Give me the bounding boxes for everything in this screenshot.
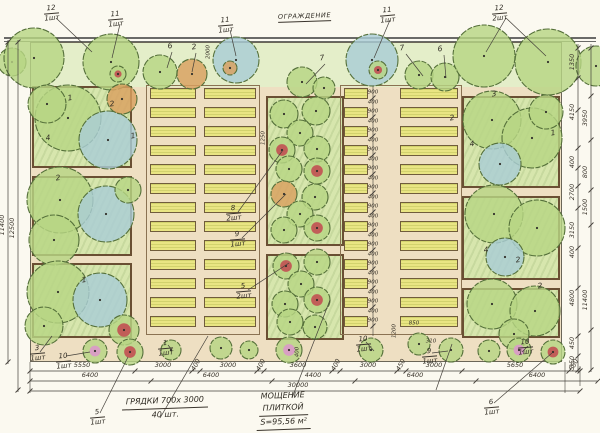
plant-center-dot bbox=[105, 213, 107, 215]
bed-dimension-label: 900 bbox=[368, 147, 379, 153]
small-dimension-label: 2000 bbox=[206, 45, 212, 59]
dimension-label: 4150 bbox=[569, 104, 576, 121]
dimension-label: 3000 bbox=[360, 362, 377, 369]
dimension-label: 400 bbox=[569, 246, 576, 258]
plant-count: 1шт bbox=[158, 348, 174, 357]
plant-count: 1шт bbox=[230, 239, 246, 248]
dimension-label: 11400 bbox=[0, 215, 5, 236]
beds-note-title: ГРЯДКИ 700х 3000 bbox=[122, 394, 209, 411]
plant-count: 1шт bbox=[30, 353, 46, 362]
dimension-label: 3000 bbox=[155, 362, 172, 369]
beds-note: ГРЯДКИ 700х 3000 40 шт. bbox=[122, 394, 209, 423]
dimension-label: 12500 bbox=[9, 218, 16, 239]
tree-number-label: 6 bbox=[167, 42, 173, 50]
plant-center-dot bbox=[418, 74, 420, 76]
path-dimension-label: 400 bbox=[368, 290, 379, 296]
tree-number-label: 2 bbox=[537, 282, 543, 290]
tree-number-label: 2 bbox=[55, 174, 61, 182]
plant-center-dot bbox=[107, 139, 109, 141]
dimension-label: 400 bbox=[569, 156, 576, 168]
plant-center-dot bbox=[33, 57, 35, 59]
tree-number-label: 1 bbox=[67, 94, 73, 102]
plant-count-label: 121шт bbox=[43, 3, 59, 22]
plant-center-dot bbox=[534, 310, 536, 312]
bed-dimension-label: 900 bbox=[368, 166, 379, 172]
plant-center-dot bbox=[248, 349, 250, 351]
tree-number-label: 4 bbox=[483, 246, 489, 254]
dimension-label: 5550 bbox=[74, 362, 91, 369]
dimension-label: 6400 bbox=[529, 372, 546, 379]
small-dimension-label: 400 bbox=[295, 347, 301, 358]
tree-number-label: 4 bbox=[469, 140, 475, 148]
dimension-label: 800 bbox=[582, 166, 589, 178]
plant-center-dot bbox=[283, 113, 285, 115]
small-dimension-label: 1200 bbox=[392, 324, 398, 338]
plant-count-label: 61шт bbox=[483, 397, 499, 416]
dimension-label: 6400 bbox=[407, 372, 424, 379]
path-dimension-label: 400 bbox=[368, 309, 379, 315]
plant-count: 2шт bbox=[492, 13, 508, 22]
plant-center-dot bbox=[288, 168, 290, 170]
paving-note-area: S=95,56 м² bbox=[256, 415, 311, 431]
plant-center-dot bbox=[377, 69, 379, 71]
plant-count-label: 91шт bbox=[421, 346, 437, 365]
plant-center-dot bbox=[488, 350, 490, 352]
dimension-label: 2700 bbox=[569, 184, 576, 201]
plant-center-dot bbox=[316, 170, 318, 172]
plant-center-dot bbox=[117, 73, 119, 75]
path-dimension-label: 400 bbox=[368, 138, 379, 144]
bed-dimension-label: 900 bbox=[368, 280, 379, 286]
dimension-label: 30000 bbox=[288, 382, 309, 389]
plant-count: 1шт bbox=[380, 15, 396, 24]
path-dimension-label: 400 bbox=[368, 252, 379, 258]
plant-center-dot bbox=[283, 229, 285, 231]
small-dimension-label: 310 bbox=[426, 339, 437, 345]
plant-count: 1шт bbox=[518, 347, 534, 356]
plant-center-dot bbox=[483, 55, 485, 57]
dimension-label: 6400 bbox=[203, 372, 220, 379]
plant-count-label: 51шт bbox=[89, 407, 105, 426]
plant-center-dot bbox=[129, 351, 131, 353]
path-dimension-label: 400 bbox=[368, 176, 379, 182]
plant-center-dot bbox=[53, 239, 55, 241]
path-dimension-label: 400 bbox=[368, 100, 379, 106]
plant-center-dot bbox=[301, 81, 303, 83]
tree-number-label: 1 bbox=[130, 132, 136, 140]
bed-dimension-label: 900 bbox=[368, 261, 379, 267]
dimension-label: 3950 bbox=[582, 110, 589, 127]
plant-center-dot bbox=[57, 291, 59, 293]
plant-center-dot bbox=[493, 213, 495, 215]
tree-number-label: 2 bbox=[515, 256, 521, 264]
plant-count-label: 111шт bbox=[217, 15, 233, 34]
plant-count-label: 82шт bbox=[225, 203, 241, 222]
bed-dimension-label: 900 bbox=[368, 109, 379, 115]
bed-dimension-label: 900 bbox=[368, 185, 379, 191]
path-dimension-label: 400 bbox=[368, 119, 379, 125]
plant-center-dot bbox=[159, 71, 161, 73]
plant-count: 1шт bbox=[90, 417, 106, 426]
plant-count-label: 101шт bbox=[517, 337, 533, 356]
plant-count: 2шт bbox=[236, 291, 252, 300]
plant-count: 2шт bbox=[226, 213, 242, 222]
plant-count-label: 101шт bbox=[55, 351, 71, 370]
dimension-label: 350 bbox=[569, 356, 576, 368]
plant-count-label: 101шт bbox=[355, 334, 371, 353]
dimension-label: 6400 bbox=[82, 372, 99, 379]
plant-center-dot bbox=[316, 227, 318, 229]
plant-center-dot bbox=[300, 283, 302, 285]
bed-dimension-label: 900 bbox=[368, 128, 379, 134]
plant-center-dot bbox=[315, 110, 317, 112]
dimension-label: 11400 bbox=[582, 290, 589, 311]
bed-dimension-label: 900 bbox=[368, 318, 379, 324]
tree-number-label: 7 bbox=[319, 54, 325, 62]
plant-center-dot bbox=[299, 213, 301, 215]
plant-center-dot bbox=[323, 87, 325, 89]
tree-number-label: 1 bbox=[550, 129, 556, 137]
plant-count: 1шт bbox=[56, 361, 72, 370]
plant-count-label: 31шт bbox=[29, 343, 45, 362]
plant-count: 1шт bbox=[108, 19, 124, 28]
plant-center-dot bbox=[531, 137, 533, 139]
plant-center-dot bbox=[110, 61, 112, 63]
plant-center-dot bbox=[316, 299, 318, 301]
plant-center-dot bbox=[491, 119, 493, 121]
tree-number-label: 3 bbox=[491, 90, 497, 98]
dimension-label: 1500 bbox=[582, 199, 589, 216]
plant-center-dot bbox=[121, 98, 123, 100]
tree-number-label: 6 bbox=[437, 45, 443, 53]
plant-count: 1шт bbox=[218, 25, 234, 34]
plant-count-label: 52шт bbox=[235, 281, 251, 300]
plant-center-dot bbox=[43, 325, 45, 327]
dimension-label: 5650 bbox=[507, 362, 524, 369]
plant-count: 1шт bbox=[422, 356, 438, 365]
small-dimension-label: 1250 bbox=[261, 131, 267, 145]
plant-center-dot bbox=[94, 350, 96, 352]
bed-dimension-label: 900 bbox=[368, 299, 379, 305]
plant-center-dot bbox=[491, 303, 493, 305]
plant-center-dot bbox=[191, 73, 193, 75]
plant-center-dot bbox=[499, 163, 501, 165]
plant-center-dot bbox=[99, 299, 101, 301]
tree-number-label: 2 bbox=[191, 43, 197, 51]
tree-number-label: 4 bbox=[45, 134, 51, 142]
plant-center-dot bbox=[314, 326, 316, 328]
plant-center-dot bbox=[127, 189, 129, 191]
plant-center-dot bbox=[229, 67, 231, 69]
plant-count: 1шт bbox=[356, 344, 372, 353]
plant-count-label: 111шт bbox=[379, 5, 395, 24]
dimension-label: 4400 bbox=[305, 372, 322, 379]
plant-count-label: 11шт bbox=[157, 338, 173, 357]
plant-center-dot bbox=[316, 261, 318, 263]
plant-center-dot bbox=[552, 351, 554, 353]
plant-count-label: 111шт bbox=[107, 9, 123, 28]
plant-center-dot bbox=[536, 227, 538, 229]
plant-center-dot bbox=[46, 103, 48, 105]
plant-center-dot bbox=[314, 196, 316, 198]
plant-center-dot bbox=[123, 329, 125, 331]
plant-center-dot bbox=[504, 256, 506, 258]
garden-plan-drawing: 5550300040030004003600400300045030005650… bbox=[0, 0, 600, 433]
plant-center-dot bbox=[316, 148, 318, 150]
tree-number-label: 7 bbox=[399, 44, 405, 52]
plant-center-dot bbox=[289, 321, 291, 323]
tree-number-label: 2 bbox=[449, 114, 455, 122]
bed-dimension-label: 900 bbox=[368, 204, 379, 210]
tree-number-label: 1 bbox=[81, 276, 87, 284]
dimension-label: 1350 bbox=[569, 54, 576, 71]
plant-count-label: 91шт bbox=[229, 229, 245, 248]
plant-count: 1шт bbox=[44, 13, 60, 22]
plant-center-dot bbox=[235, 59, 237, 61]
path-dimension-label: 400 bbox=[368, 195, 379, 201]
path-dimension-label: 400 bbox=[368, 214, 379, 220]
path-dimension-label: 400 bbox=[368, 233, 379, 239]
bed-dimension-label: 900 bbox=[368, 242, 379, 248]
plant-center-dot bbox=[595, 65, 597, 67]
paving-note-line1: МОЩЕНИЕ bbox=[261, 390, 305, 401]
fence-label: ОГРАЖДЕНИЕ bbox=[278, 12, 331, 23]
beds-note-count: 40 шт. bbox=[152, 410, 180, 420]
plant-center-dot bbox=[59, 199, 61, 201]
bed-dimension-label: 900 bbox=[368, 90, 379, 96]
plant-center-dot bbox=[220, 347, 222, 349]
path-dimension-label: 400 bbox=[368, 157, 379, 163]
bed-dimension-label: 900 bbox=[368, 223, 379, 229]
plant-center-dot bbox=[288, 349, 290, 351]
plant-center-dot bbox=[67, 117, 69, 119]
plant-count-label: 122шт bbox=[491, 3, 507, 22]
dimension-label: 3600 bbox=[290, 362, 307, 369]
plant-center-dot bbox=[547, 61, 549, 63]
path-dimension-label: 400 bbox=[368, 271, 379, 277]
dimension-label: 4800 bbox=[569, 290, 576, 307]
plant-center-dot bbox=[371, 59, 373, 61]
dimension-label: 3000 bbox=[220, 362, 237, 369]
plant-center-dot bbox=[284, 303, 286, 305]
dimension-label: 3150 bbox=[569, 222, 576, 239]
small-dimension-label: 850 bbox=[409, 321, 420, 327]
plant-center-dot bbox=[513, 333, 515, 335]
paving-note: МОЩЕНИЕ ПЛИТКОЙ S=95,56 м² bbox=[255, 389, 311, 431]
dimension-label: 450 bbox=[569, 337, 576, 349]
plant-count: 1шт bbox=[484, 407, 500, 416]
plant-center-dot bbox=[418, 343, 420, 345]
plant-center-dot bbox=[299, 132, 301, 134]
tree-number-label: 2 bbox=[109, 100, 115, 108]
plant-center-dot bbox=[545, 111, 547, 113]
